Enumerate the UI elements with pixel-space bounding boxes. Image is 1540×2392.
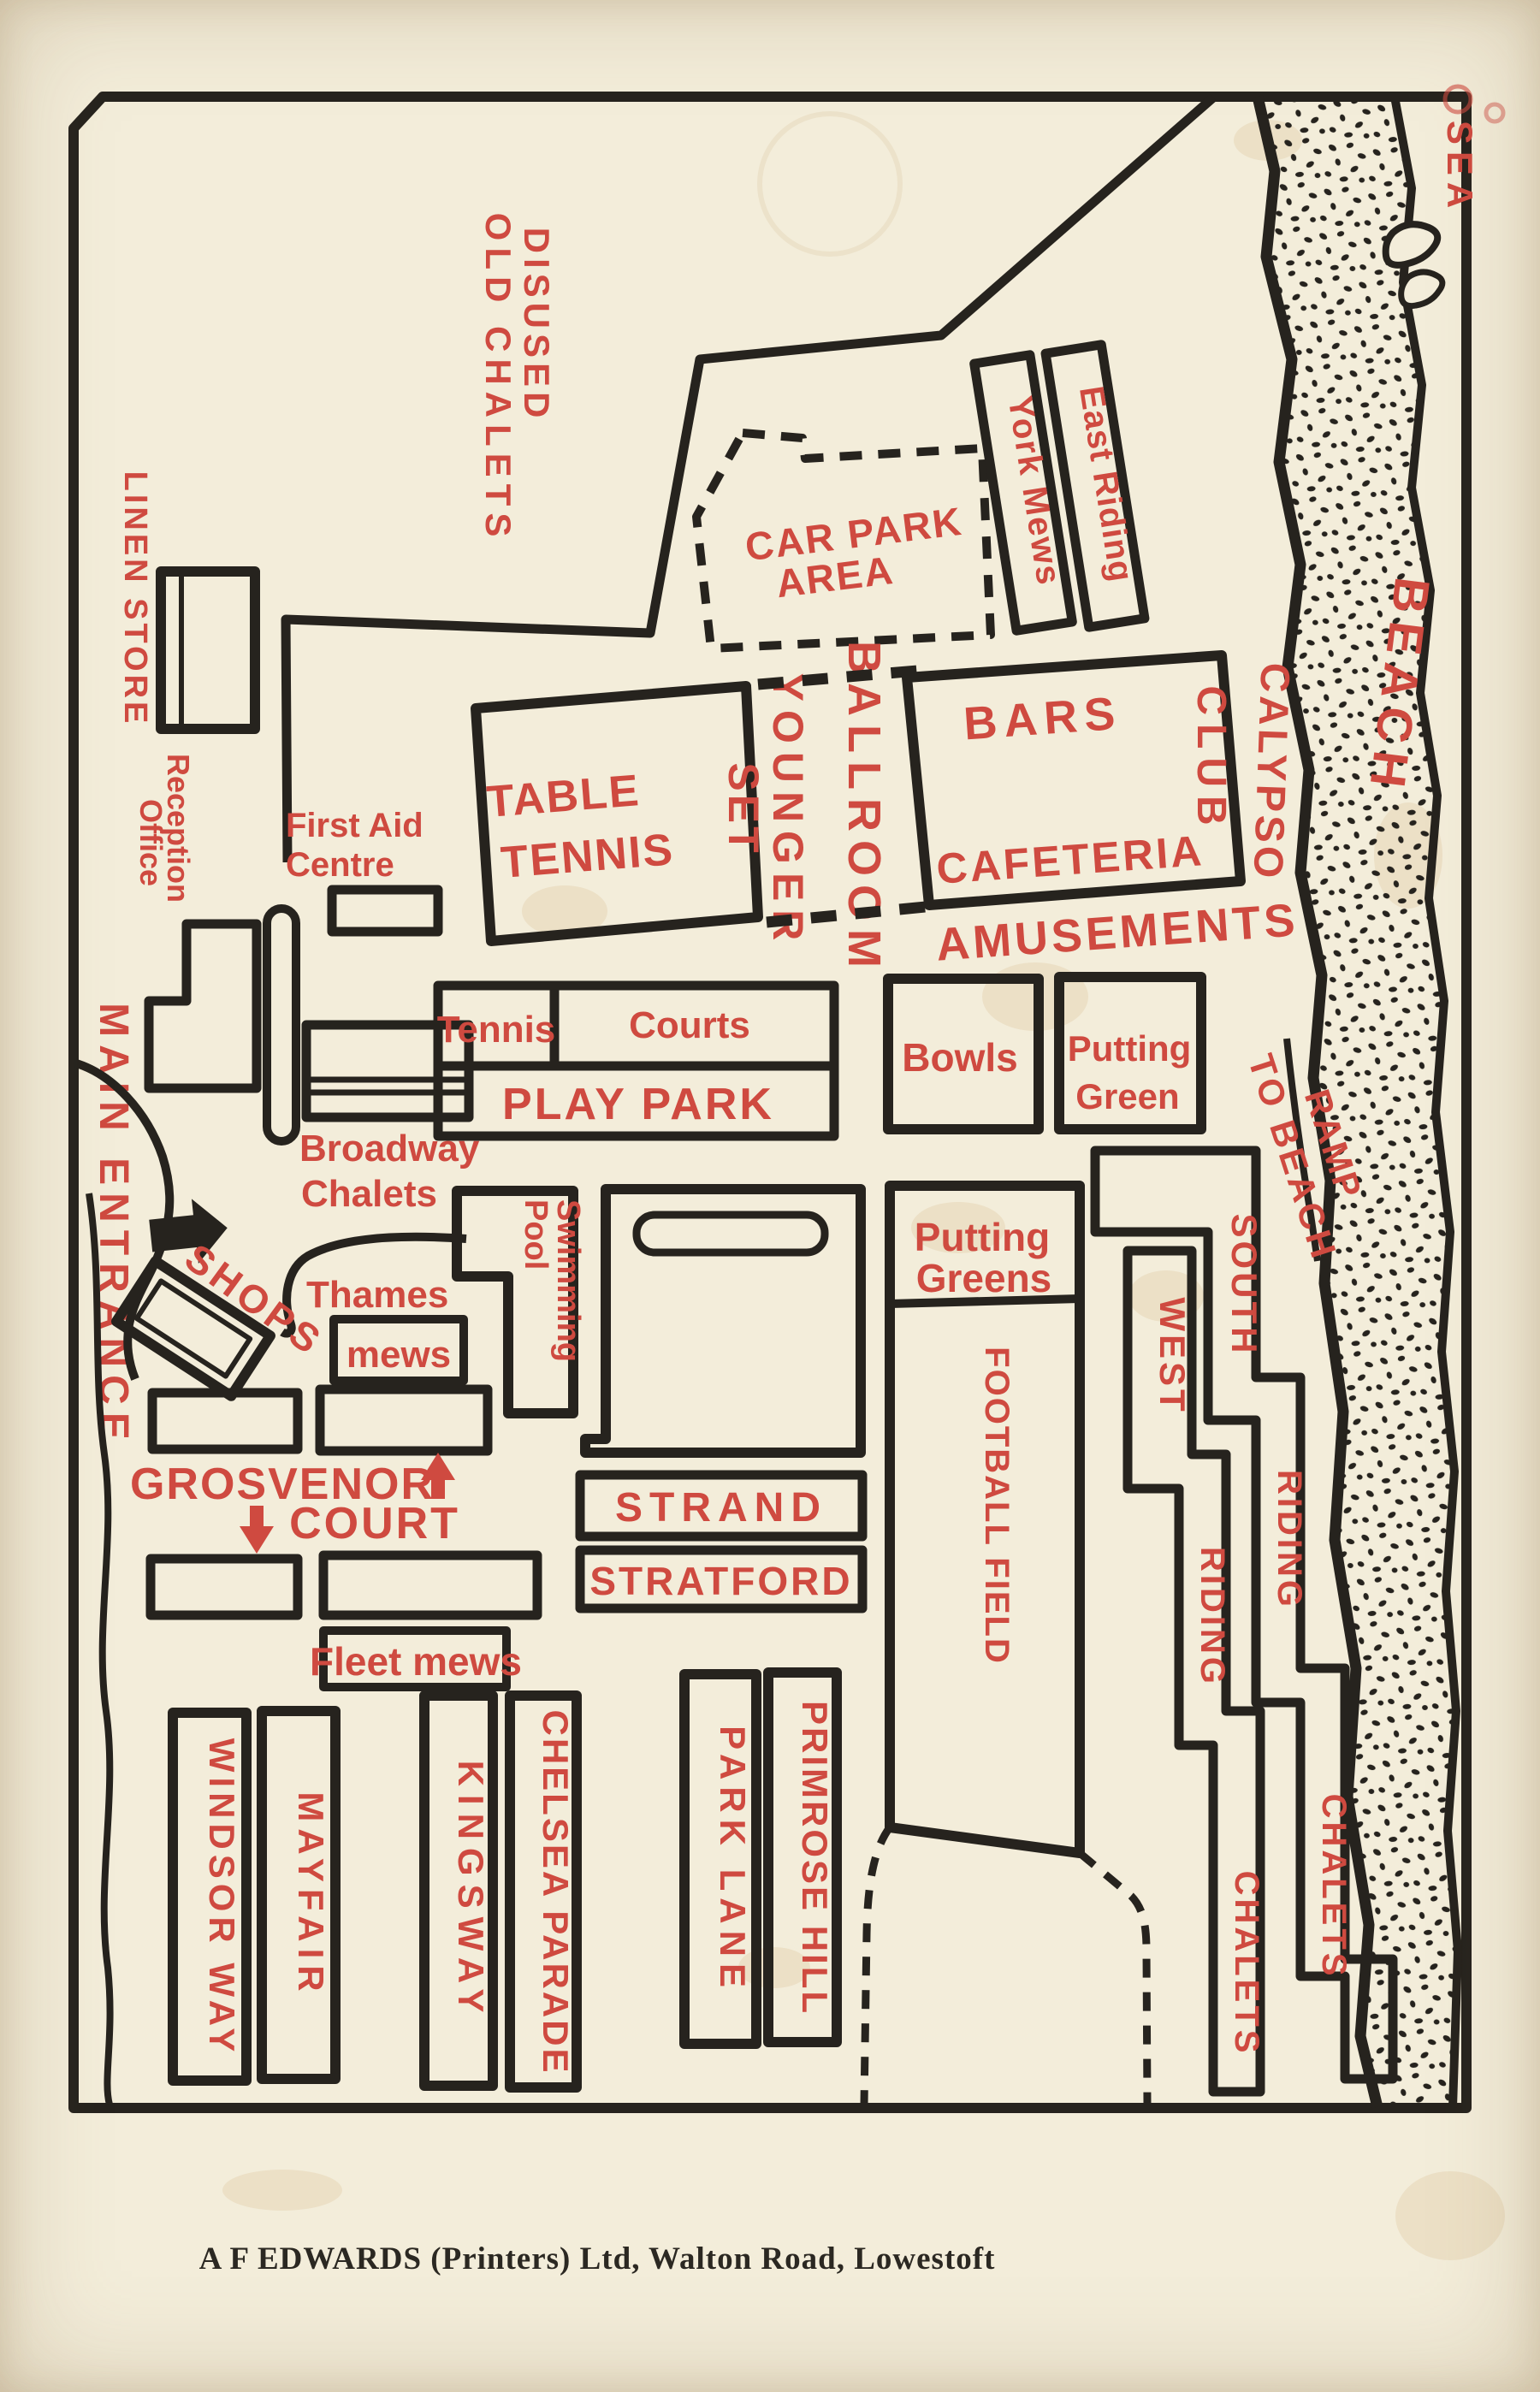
dashed-path-right [1080, 1853, 1147, 2105]
label-younger: YOUNGER [764, 673, 812, 950]
label-broadway-chalets: Chalets [301, 1173, 437, 1215]
label-old-chalets: OLD CHALETS [478, 213, 518, 544]
label-table: TABLE [485, 766, 642, 827]
stain-ring [760, 114, 900, 254]
road-island [267, 909, 296, 1141]
label-reception-office: Office [133, 799, 169, 886]
label-club: CLUB [1188, 685, 1234, 833]
label-putting-greens-2: Greens [916, 1256, 1052, 1300]
label-disused: DISUSED [517, 228, 557, 423]
label-tennis-hall: TENNIS [499, 825, 676, 888]
postcard-map-page: SEA BEACH RAMP TO BEACH DISUSED OLD CHAL… [0, 0, 1540, 2392]
label-play-park: PLAY PARK [502, 1080, 774, 1129]
east-riding-block: East Riding [1045, 345, 1146, 628]
kingsway-block: KINGSWAY [424, 1696, 493, 2086]
holiday-camp-map: SEA BEACH RAMP TO BEACH DISUSED OLD CHAL… [0, 0, 1540, 2392]
label-fleet-mews: Fleet mews [310, 1639, 522, 1684]
label-riding-inner: RIDING [1193, 1547, 1231, 1687]
label-windsor-way: WINDSOR WAY [202, 1738, 242, 2057]
label-strand: STRAND [615, 1485, 827, 1531]
printer-credit: A F EDWARDS (Printers) Ltd, Walton Road,… [199, 2241, 996, 2277]
beach-pool-blob [1386, 224, 1438, 265]
label-amusements: AMUSEMENTS [934, 894, 1300, 970]
stamp-mark-icon [1486, 104, 1503, 121]
label-thames: Thames [306, 1274, 448, 1316]
label-bowls: Bowls [902, 1035, 1017, 1080]
label-first-aid-centre: Centre [286, 846, 394, 884]
beach-pool-blob [1401, 272, 1442, 306]
label-ballroom: BALLROOM [838, 641, 890, 976]
reception-building [149, 924, 257, 1088]
label-putting-greens-1: Putting [915, 1215, 1050, 1259]
park-lane-block: PARK LANE [684, 1674, 756, 2044]
label-bars: BARS [962, 688, 1123, 750]
label-chalets-inner: CHALETS [1228, 1871, 1265, 2057]
label-primrose-hill: PRIMROSE HILL [795, 1701, 835, 2016]
label-park-lane: PARK LANE [713, 1726, 753, 1994]
label-chelsea-parade: CHELSEA PARADE [536, 1709, 576, 2075]
label-kingsway: KINGSWAY [451, 1761, 491, 2022]
label-putting: Putting [1068, 1028, 1192, 1069]
label-stratford: STRATFORD [589, 1559, 852, 1603]
label-south: SOUTH [1224, 1214, 1265, 1357]
label-west: WEST [1152, 1297, 1193, 1414]
label-football-field: FOOTBALL FIELD [978, 1347, 1016, 1665]
label-linen-store: LINEN STORE [117, 471, 153, 727]
pool [637, 1215, 825, 1252]
label-mayfair: MAYFAIR [291, 1791, 331, 1998]
label-younger-set: SET [720, 762, 767, 856]
dashed-path-left [864, 1827, 890, 2105]
label-tennis-court: Tennis [437, 1009, 556, 1051]
label-riding-outer: RIDING [1270, 1470, 1308, 1610]
label-east-riding: East Riding [1072, 383, 1140, 584]
chelsea-parade-block: CHELSEA PARADE [510, 1696, 577, 2087]
label-chalets-outer: CHALETS [1315, 1794, 1353, 1980]
label-calypso: CALYPSO [1245, 662, 1298, 882]
label-courts: Courts [629, 1004, 750, 1046]
label-first-aid: First Aid [286, 807, 423, 844]
windsor-way-block: WINDSOR WAY [173, 1713, 246, 2081]
label-putting-green: Green [1075, 1076, 1179, 1116]
label-swimming-pool: Pool [518, 1199, 554, 1270]
label-swimming: Swimming [550, 1199, 586, 1362]
mayfair-block: MAYFAIR [262, 1711, 335, 2079]
label-mews: mews [346, 1334, 451, 1376]
linen-store-building [161, 571, 255, 729]
label-court: COURT [289, 1499, 460, 1548]
label-sea: SEA [1440, 121, 1480, 215]
first-aid-building [332, 890, 438, 932]
pool-enclosure [585, 1189, 861, 1453]
arrow-down-icon [240, 1506, 274, 1554]
